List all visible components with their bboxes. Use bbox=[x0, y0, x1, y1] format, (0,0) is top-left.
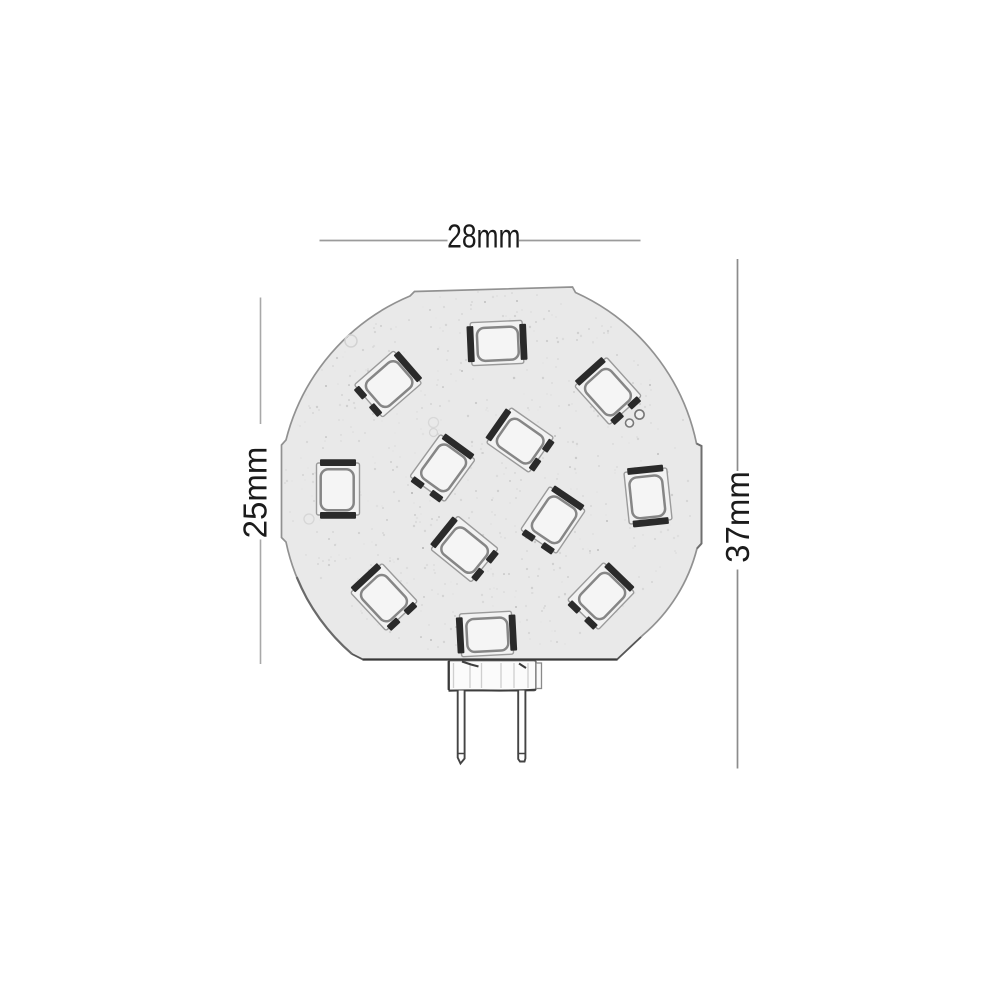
svg-text:28mm: 28mm bbox=[447, 219, 520, 255]
svg-text:37mm: 37mm bbox=[719, 471, 756, 563]
svg-text:25mm: 25mm bbox=[236, 447, 273, 539]
